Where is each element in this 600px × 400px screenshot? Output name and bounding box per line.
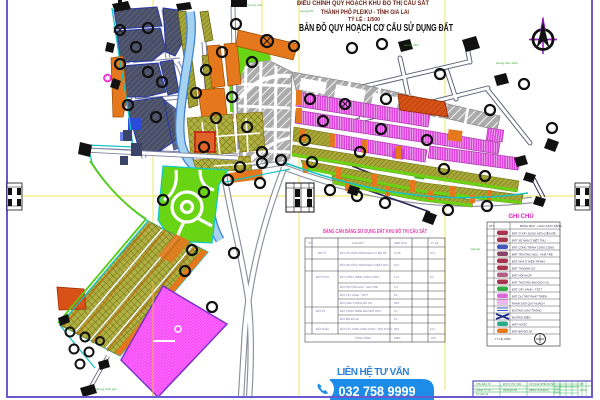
svg-text:238.6: 238.6 [394,336,401,340]
svg-text:38.6: 38.6 [394,301,400,305]
svg-text:ĐƠN VỊ TƯ VẤN: ĐƠN VỊ TƯ VẤN [503,383,521,386]
svg-text:VIỆN QH XD: VIỆN QH XD [503,389,517,392]
svg-text:mat cat: mat cat [470,247,480,251]
svg-text:TỶ LỆ 1/500: TỶ LỆ 1/500 [495,336,511,341]
svg-text:XD GIA LAI: XD GIA LAI [476,393,489,396]
svg-text:28.9: 28.9 [394,327,400,331]
svg-text:UBND TP PLEIKU: UBND TP PLEIKU [529,389,549,392]
svg-text:4.2: 4.2 [394,309,398,313]
svg-text:STT: STT [308,241,313,245]
svg-text:duong dien: duong dien [404,43,419,47]
svg-text:ĐẤT XD NHÀ Ở BIỆT THỰ: ĐẤT XD NHÀ Ở BIỆT THỰ [512,238,546,243]
svg-text:DIỆN TÍCH: DIỆN TÍCH [394,240,407,245]
svg-text:100: 100 [431,336,436,340]
svg-text:12.4: 12.4 [394,275,400,279]
svg-text:ĐIỀU CHỈNH QUY HOẠCH KHU ĐÔ TH: ĐIỀU CHỈNH QUY HOẠCH KHU ĐÔ THỊ CẦU SẮT [297,0,429,7]
svg-text:ĐẤT CÔNG TRÌNH ĐẦU MỐI HTKT: ĐẤT CÔNG TRÌNH ĐẦU MỐI HTKT [340,308,382,313]
svg-text:ĐẤT BÃI ĐỖ XE: ĐẤT BÃI ĐỖ XE [512,329,532,334]
svg-text:6.4: 6.4 [394,285,398,289]
svg-text:BẢNG MÀU - LOẠI CHỨC NĂNG: BẢNG MÀU - LOẠI CHỨC NĂNG [520,223,562,228]
svg-text:CƠ QUAN PHÊ DUYỆT: CƠ QUAN PHÊ DUYỆT [529,383,555,386]
svg-text:ĐẤT GIAO THÔNG ĐÔ THỊ: ĐẤT GIAO THÔNG ĐÔ THỊ [340,300,372,305]
svg-text:ĐẤT TRƯỜNG HỌC - NHÀ TRẺ: ĐẤT TRƯỜNG HỌC - NHÀ TRẺ [512,252,553,257]
svg-text:duong ranh gioi: duong ranh gioi [96,387,117,391]
svg-text:GHI CHÚ: GHI CHÚ [508,213,533,220]
svg-text:BẢN ĐỒ QUY HOẠCH CƠ CẤU SỬ DỤN: BẢN ĐỒ QUY HOẠCH CƠ CẤU SỬ DỤNG ĐẤT [299,21,453,34]
svg-text:ĐẤT CÂY XANH CẢNH QUAN - MẶT N: ĐẤT CÂY XANH CẢNH QUAN - MẶT NƯỚC [340,326,392,331]
svg-text:LIÊN HỆ TƯ VẤN: LIÊN HỆ TƯ VẤN [337,365,411,378]
svg-text:12.1: 12.1 [430,327,436,331]
svg-text:suoi hoi phu: suoi hoi phu [246,3,263,7]
svg-text:ĐƯỜNG GIAO THÔNG: ĐƯỜNG GIAO THÔNG [512,308,542,313]
svg-text:ĐẤT XD CÔNG TRÌNH NHÀ Ở BIỆT T: ĐẤT XD CÔNG TRÌNH NHÀ Ở BIỆT THỰ [340,262,389,267]
svg-text:TỶ LỆ: TỶ LỆ [431,240,438,245]
svg-text:ĐẤT XD CÔNG TRÌNH NHÀ Ở LIỀN K: ĐẤT XD CÔNG TRÌNH NHÀ Ở LIỀN KỀ [340,250,387,255]
svg-text:ĐẤT NHÀ Ở HIỆN TRẠNG: ĐẤT NHÀ Ở HIỆN TRẠNG [512,259,545,264]
svg-text:24.2: 24.2 [394,263,400,267]
svg-text:ĐẤT DỰ TRỮ PHÁT TRIỂN: ĐẤT DỰ TRỮ PHÁT TRIỂN [512,294,547,299]
svg-text:ĐẤT CÔNG TRÌNH CÔNG CỘNG: ĐẤT CÔNG TRÌNH CÔNG CỘNG [340,274,379,279]
svg-text:CÔNG TY CP: CÔNG TY CP [476,389,491,392]
svg-text:THÀNH PHỐ PLEIKU - TỈNH GIA LA: THÀNH PHỐ PLEIKU - TỈNH GIA LAI [321,6,409,16]
svg-text:ĐẤT CTCC: ĐẤT CTCC [316,274,329,279]
svg-text:ĐẤT Ở XÂY DỰNG MỚI (LIỀN KỀ): ĐẤT Ở XÂY DỰNG MỚI (LIỀN KỀ) [512,231,556,236]
svg-text:ĐẤT CÂY XANH - TDTT: ĐẤT CÂY XANH - TDTT [340,292,368,297]
svg-text:STT: STT [489,224,495,228]
svg-text:ĐẤT KT: ĐẤT KT [316,308,326,313]
svg-text:RANH GIỚI QUY HOẠCH: RANH GIỚI QUY HOẠCH [512,301,545,306]
svg-text:6.1: 6.1 [394,317,398,321]
svg-text:duong dien 22kv: duong dien 22kv [496,61,519,65]
svg-text:5.2: 5.2 [430,275,434,279]
svg-text:ĐẤT BÃI ĐỖ XE: ĐẤT BÃI ĐỖ XE [340,316,359,321]
svg-text:MẶT NƯỚC: MẶT NƯỚC [512,322,527,327]
svg-text:76.45: 76.45 [394,251,401,255]
svg-text:QH-01: QH-01 [580,389,588,392]
svg-text:ĐẤT KHÁC: ĐẤT KHÁC [316,326,329,331]
svg-text:ĐƯỜNG ĐIỆN: ĐƯỜNG ĐIỆN [512,315,530,320]
svg-text:LOẠI ĐẤT: LOẠI ĐẤT [352,240,364,245]
svg-text:ĐẤT CÔNG TRÌNH CÔNG CỘNG: ĐẤT CÔNG TRÌNH CÔNG CỘNG [512,245,554,250]
svg-text:ĐẤT TÁI ĐỊNH CƯ: ĐẤT TÁI ĐỊNH CƯ [512,266,536,271]
svg-text:KH: KH [580,383,584,386]
svg-text:ĐẤT HỖN HỢP: ĐẤT HỖN HỢP [512,273,532,278]
svg-text:TỔNG CỘNG: TỔNG CỘNG [355,335,371,340]
svg-text:ĐẤT TRƯỜNG HỌC - NHÀ TRẺ: ĐẤT TRƯỜNG HỌC - NHÀ TRẺ [340,284,378,289]
svg-text:32.1: 32.1 [430,251,436,255]
svg-text:duong N5: duong N5 [300,9,313,13]
svg-text:ĐẤT Ở: ĐẤT Ở [318,250,327,255]
svg-text:ĐẤT THƯƠNG MẠI DỊCH VỤ: ĐẤT THƯƠNG MẠI DỊCH VỤ [512,280,549,285]
svg-text:BẢNG CÂN BẰNG SỬ DỤNG ĐẤT KHU: BẢNG CÂN BẰNG SỬ DỤNG ĐẤT KHU ĐÔ THỊ CẦU… [323,227,427,235]
svg-text:CHỦ ĐẦU TƯ: CHỦ ĐẦU TƯ [476,383,491,386]
svg-text:ĐẤT CÂY XANH - TDTT: ĐẤT CÂY XANH - TDTT [512,287,542,292]
svg-text:8.2: 8.2 [394,293,398,297]
